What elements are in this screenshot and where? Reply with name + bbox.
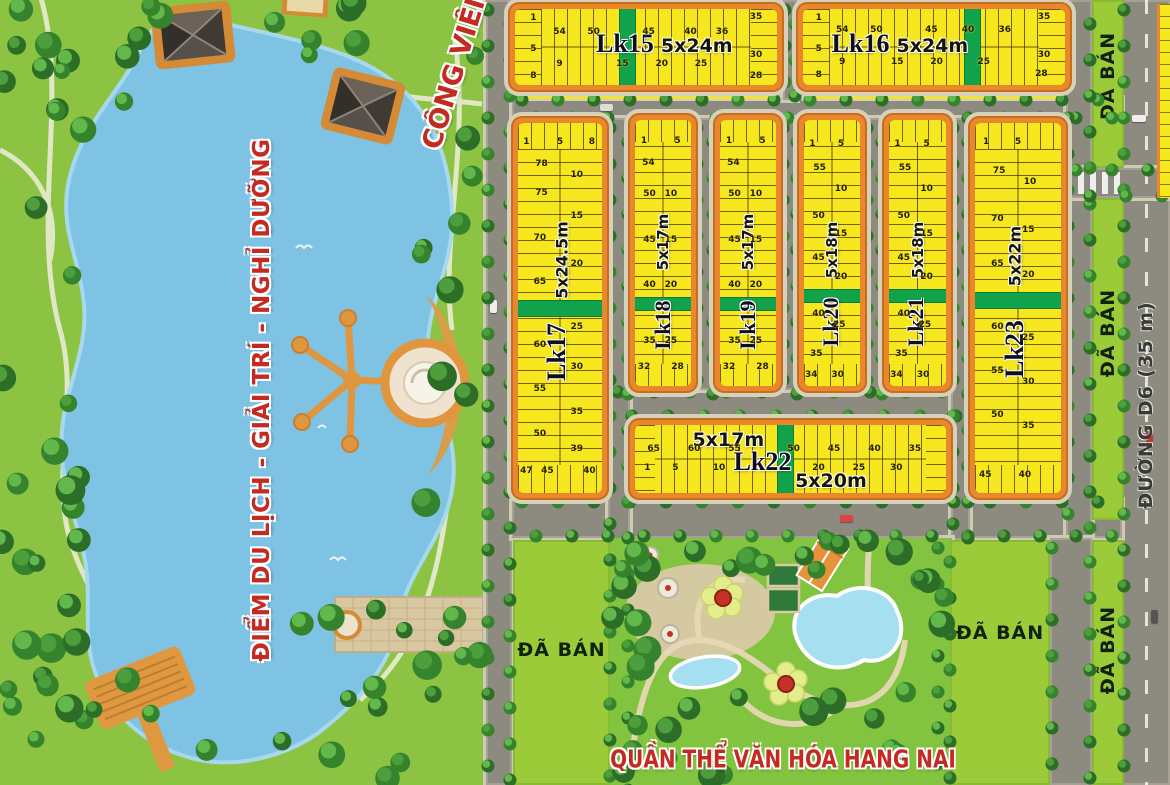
block-lk16: Lk16 5x24m 15450454036355915202530828 bbox=[796, 2, 1072, 92]
lot-number: 39 bbox=[571, 444, 584, 454]
lot-number: 40 bbox=[898, 309, 911, 319]
lot-number: 35 bbox=[909, 444, 922, 454]
lot-number: 15 bbox=[750, 235, 763, 245]
lot-number: 1 bbox=[816, 13, 822, 23]
lot-number: 30 bbox=[1022, 377, 1035, 387]
lot-number: 1 bbox=[726, 136, 732, 146]
lot-number: 50 bbox=[898, 211, 911, 221]
lot-number: 15 bbox=[920, 229, 933, 239]
lot-number: 45 bbox=[728, 235, 741, 245]
lot-number: 28 bbox=[750, 71, 763, 81]
lot-number: 70 bbox=[534, 233, 547, 243]
lot-number: 10 bbox=[920, 184, 933, 194]
lot-number: 15 bbox=[616, 59, 629, 69]
lot-number: 8 bbox=[816, 70, 822, 80]
lot-number: 20 bbox=[750, 280, 763, 290]
lot-number: 1 bbox=[983, 137, 989, 147]
lot-number: 45 bbox=[979, 470, 992, 480]
lot-number: 30 bbox=[750, 50, 763, 60]
lot-number: 35 bbox=[1022, 421, 1035, 431]
block-size: 5x24m bbox=[661, 35, 733, 57]
lot-number: 55 bbox=[534, 384, 547, 394]
lot-number: 40 bbox=[1019, 470, 1032, 480]
lot-number: 15 bbox=[571, 211, 584, 221]
lot-number: 40 bbox=[962, 25, 975, 35]
lot-number: 65 bbox=[647, 444, 660, 454]
lot-number: 15 bbox=[1022, 225, 1035, 235]
lot-number: 45 bbox=[812, 253, 825, 263]
lot-number: 30 bbox=[1038, 50, 1051, 60]
lot-number: 20 bbox=[655, 59, 668, 69]
lot-number: 1 bbox=[644, 463, 650, 473]
lot-number: 54 bbox=[727, 158, 740, 168]
lot-number: 20 bbox=[920, 272, 933, 282]
lot-number: 5 bbox=[1015, 137, 1021, 147]
lot-number: 40 bbox=[684, 27, 697, 37]
lot-number: 34 bbox=[890, 370, 903, 380]
lot-number: 5 bbox=[923, 139, 929, 149]
lot-number: 8 bbox=[530, 71, 536, 81]
lot-number: 45 bbox=[925, 25, 938, 35]
lot-number: 55 bbox=[813, 163, 826, 173]
lot-number: 1 bbox=[641, 136, 647, 146]
lot-number: 70 bbox=[991, 214, 1004, 224]
block-lk17: Lk17 5x24.5m 158781075157020652560305535… bbox=[511, 116, 609, 500]
block-lk18: Lk18 5x17m 155450104515402035253228 bbox=[628, 113, 698, 393]
lot-number: 9 bbox=[556, 59, 562, 69]
lot-number: 10 bbox=[571, 170, 584, 180]
lot-number: 8 bbox=[589, 137, 595, 147]
lot-number: 40 bbox=[812, 309, 825, 319]
lot-number: 20 bbox=[571, 259, 584, 269]
lot-number: 25 bbox=[695, 59, 708, 69]
lot-number: 50 bbox=[812, 211, 825, 221]
lot-number: 50 bbox=[643, 189, 656, 199]
block-lk23: Lk23 5x22m 15751070156520602555305035454… bbox=[968, 116, 1068, 500]
lot-number: 15 bbox=[891, 57, 904, 67]
lot-number: 50 bbox=[728, 189, 741, 199]
block-lk15: Lk15 5x24m 15450454036355915202530828 bbox=[508, 2, 784, 92]
lot-number: 34 bbox=[805, 370, 818, 380]
lot-number: 28 bbox=[1035, 69, 1048, 79]
block-lk22: 5x17m Lk22 5x20m 65605550454035151020253… bbox=[628, 418, 953, 500]
lot-number: 50 bbox=[870, 25, 883, 35]
lot-number: 10 bbox=[1024, 177, 1037, 187]
lot-number: 35 bbox=[571, 407, 584, 417]
road-d6-label: ĐƯỜNG D6 (35 m) bbox=[1135, 301, 1157, 508]
lot-number: 25 bbox=[1022, 333, 1035, 343]
lot-number: 75 bbox=[535, 188, 548, 198]
lot-number: 45 bbox=[643, 235, 656, 245]
lot-number: 36 bbox=[998, 25, 1011, 35]
lot-number: 45 bbox=[541, 466, 554, 476]
lot-number: 5 bbox=[530, 44, 536, 54]
partial-lot-strip bbox=[1157, 4, 1170, 198]
block-lk21: Lk21 5x18m 155510501545204025353430 bbox=[882, 113, 953, 393]
lot-number: 5 bbox=[674, 136, 680, 146]
lot-number: 5 bbox=[672, 463, 678, 473]
lot-number: 65 bbox=[991, 259, 1004, 269]
lot-number: 30 bbox=[831, 370, 844, 380]
lot-number: 1 bbox=[530, 13, 536, 23]
lot-number: 45 bbox=[828, 444, 841, 454]
lot-number: 35 bbox=[810, 349, 823, 359]
culture-complex-label: QUẦN THỂ VĂN HÓA HANG NAI bbox=[610, 745, 956, 774]
lot-number: 28 bbox=[671, 362, 684, 372]
lot-number: 54 bbox=[553, 27, 566, 37]
lot-number: 20 bbox=[1022, 270, 1035, 280]
lot-number: 35 bbox=[750, 12, 763, 22]
lot-number: 20 bbox=[930, 57, 943, 67]
lot-number: 15 bbox=[665, 235, 678, 245]
lot-number: 35 bbox=[895, 349, 908, 359]
lot-number: 10 bbox=[835, 184, 848, 194]
lot-number: 40 bbox=[728, 280, 741, 290]
lot-number: 78 bbox=[535, 159, 548, 169]
lot-number: 50 bbox=[587, 27, 600, 37]
lot-number: 1 bbox=[523, 137, 529, 147]
lot-number: 25 bbox=[919, 320, 932, 330]
lot-number: 10 bbox=[665, 189, 678, 199]
lot-number: 30 bbox=[571, 362, 584, 372]
lot-number: 50 bbox=[534, 429, 547, 439]
lot-number: 35 bbox=[1038, 12, 1051, 22]
lot-number: 75 bbox=[993, 166, 1006, 176]
lot-number: 54 bbox=[642, 158, 655, 168]
lot-number: 25 bbox=[978, 57, 991, 67]
block-lk20: Lk20 5x18m 155510501545204025353430 bbox=[797, 113, 867, 393]
lake-zone-label: ĐIỂM DU LỊCH - GIẢI TRÍ - NGHỈ DƯỠNG bbox=[249, 139, 275, 662]
block-size: 5x24.5m bbox=[552, 221, 571, 299]
lot-number: 20 bbox=[812, 463, 825, 473]
lot-number: 20 bbox=[835, 272, 848, 282]
green-divider bbox=[975, 293, 1061, 308]
block-name: Lk22 bbox=[734, 447, 792, 477]
lot-number: 15 bbox=[835, 229, 848, 239]
lot-number: 10 bbox=[713, 463, 726, 473]
block-size-2: 5x20m bbox=[795, 470, 867, 492]
master-plan-map: ĐÃ BÁN ĐÃ BÁN ĐÃ BÁN ĐÃ BÁN ĐÃ BÁN bbox=[0, 0, 1170, 785]
lot-number: 40 bbox=[643, 280, 656, 290]
lot-number: 5 bbox=[557, 137, 563, 147]
lot-number: 25 bbox=[833, 320, 846, 330]
lot-number: 36 bbox=[716, 27, 729, 37]
lot-number: 20 bbox=[665, 280, 678, 290]
lot-number: 5 bbox=[759, 136, 765, 146]
green-divider bbox=[518, 301, 602, 316]
lot-number: 60 bbox=[688, 444, 701, 454]
lot-number: 5 bbox=[816, 44, 822, 54]
lot-number: 55 bbox=[991, 366, 1004, 376]
lot-number: 47 bbox=[520, 466, 533, 476]
lot-number: 50 bbox=[787, 444, 800, 454]
block-lk19: Lk19 5x17m 155450104515402035253228 bbox=[713, 113, 783, 393]
lot-number: 35 bbox=[643, 336, 656, 346]
lot-number: 1 bbox=[809, 139, 815, 149]
lot-number: 45 bbox=[642, 27, 655, 37]
lot-number: 25 bbox=[665, 336, 678, 346]
lot-number: 28 bbox=[756, 362, 769, 372]
lot-number: 9 bbox=[839, 57, 845, 67]
block-name: Lk17 bbox=[542, 323, 572, 381]
lot-number: 55 bbox=[899, 163, 912, 173]
lot-number: 32 bbox=[723, 362, 736, 372]
lot-number: 40 bbox=[583, 466, 596, 476]
block-size: 5x24m bbox=[896, 35, 968, 57]
lot-number: 30 bbox=[917, 370, 930, 380]
lot-number: 54 bbox=[836, 25, 849, 35]
lot-number: 65 bbox=[534, 277, 547, 287]
lot-number: 1 bbox=[894, 139, 900, 149]
lot-number: 25 bbox=[750, 336, 763, 346]
lot-number: 32 bbox=[638, 362, 651, 372]
lot-number: 60 bbox=[991, 322, 1004, 332]
lot-number: 45 bbox=[898, 253, 911, 263]
lot-number: 5 bbox=[838, 139, 844, 149]
lot-number: 30 bbox=[890, 463, 903, 473]
lot-number: 40 bbox=[868, 444, 881, 454]
lot-number: 35 bbox=[728, 336, 741, 346]
lot-number: 25 bbox=[853, 463, 866, 473]
lot-number: 10 bbox=[750, 189, 763, 199]
lot-number: 25 bbox=[571, 322, 584, 332]
lot-number: 55 bbox=[728, 444, 741, 454]
lot-number: 50 bbox=[991, 410, 1004, 420]
lot-number: 60 bbox=[534, 340, 547, 350]
